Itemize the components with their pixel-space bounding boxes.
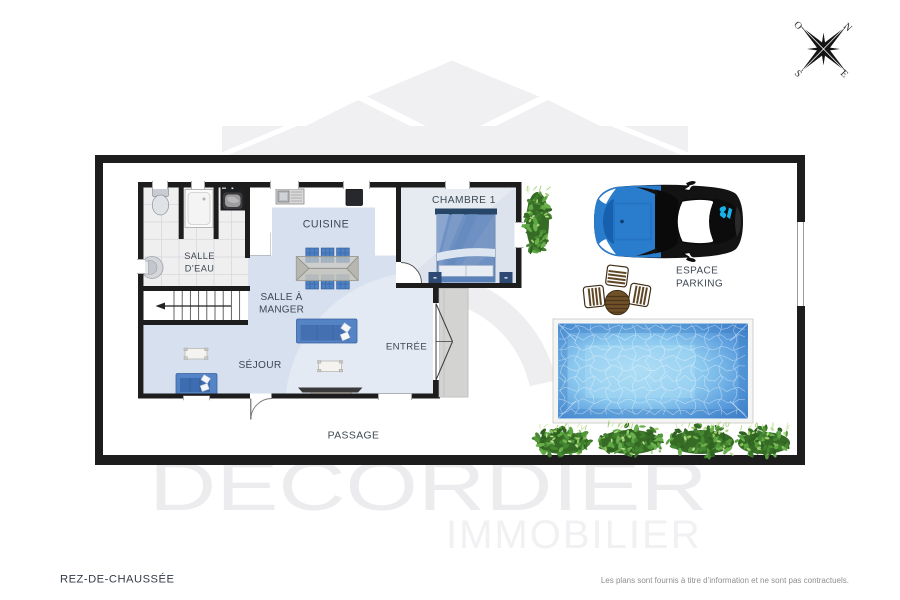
svg-text:SALLE À: SALLE À bbox=[261, 290, 303, 303]
svg-text:SALLE: SALLE bbox=[184, 251, 215, 261]
svg-text:ESPACE: ESPACE bbox=[676, 266, 718, 277]
svg-text:D’EAU: D’EAU bbox=[185, 264, 215, 274]
svg-text:MANGER: MANGER bbox=[259, 305, 304, 316]
svg-text:PARKING: PARKING bbox=[676, 279, 723, 290]
svg-text:O: O bbox=[791, 19, 804, 32]
svg-text:S: S bbox=[792, 68, 804, 80]
svg-text:REZ-DE-CHAUSSÉE: REZ-DE-CHAUSSÉE bbox=[60, 573, 174, 586]
svg-text:SÉJOUR: SÉJOUR bbox=[238, 358, 281, 371]
svg-text:Les plans sont fournis à titre: Les plans sont fournis à titre d’informa… bbox=[601, 576, 849, 585]
svg-text:CHAMBRE 1: CHAMBRE 1 bbox=[432, 195, 496, 206]
svg-text:PASSAGE: PASSAGE bbox=[328, 431, 380, 442]
svg-text:IMMOBILIER: IMMOBILIER bbox=[446, 513, 702, 557]
svg-text:E: E bbox=[838, 68, 850, 80]
svg-text:CUISINE: CUISINE bbox=[303, 219, 349, 231]
svg-text:N: N bbox=[841, 21, 854, 34]
svg-text:ENTRÉE: ENTRÉE bbox=[386, 342, 427, 353]
